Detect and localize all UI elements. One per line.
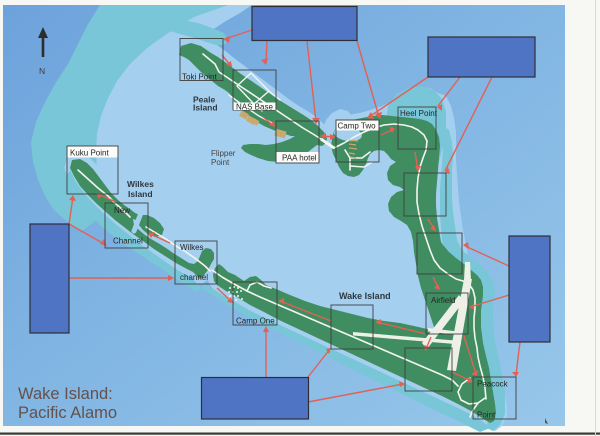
svg-text:Wake Island: Wake Island bbox=[339, 291, 391, 301]
svg-text:Toki Point: Toki Point bbox=[182, 73, 217, 82]
svg-text:Camp One: Camp One bbox=[236, 317, 275, 326]
svg-text:Kuku Point: Kuku Point bbox=[70, 149, 109, 158]
svg-text:Channel: Channel bbox=[113, 237, 143, 246]
svg-text:NAS Base: NAS Base bbox=[236, 103, 273, 112]
svg-text:Wilkes: Wilkes bbox=[127, 179, 154, 189]
svg-text:PAA hotel: PAA hotel bbox=[282, 154, 317, 163]
svg-text:Camp Two: Camp Two bbox=[338, 122, 377, 131]
svg-text:Wake Island:: Wake Island: bbox=[18, 385, 113, 403]
svg-text:Pacific Alamo: Pacific Alamo bbox=[18, 404, 117, 422]
svg-text:New: New bbox=[114, 206, 130, 215]
svg-text:Island: Island bbox=[128, 189, 153, 199]
svg-text:Flipper: Flipper bbox=[211, 149, 236, 158]
svg-text:N: N bbox=[39, 66, 45, 76]
svg-text:Heel Point: Heel Point bbox=[400, 109, 438, 118]
svg-text:Peacock: Peacock bbox=[477, 380, 509, 389]
svg-text:Point: Point bbox=[211, 158, 230, 167]
svg-text:Wilkes: Wilkes bbox=[180, 243, 204, 252]
svg-text:Island: Island bbox=[193, 103, 218, 113]
svg-text:Airfield: Airfield bbox=[431, 296, 455, 305]
svg-text:channel: channel bbox=[180, 273, 208, 282]
svg-text:Point: Point bbox=[477, 411, 496, 420]
